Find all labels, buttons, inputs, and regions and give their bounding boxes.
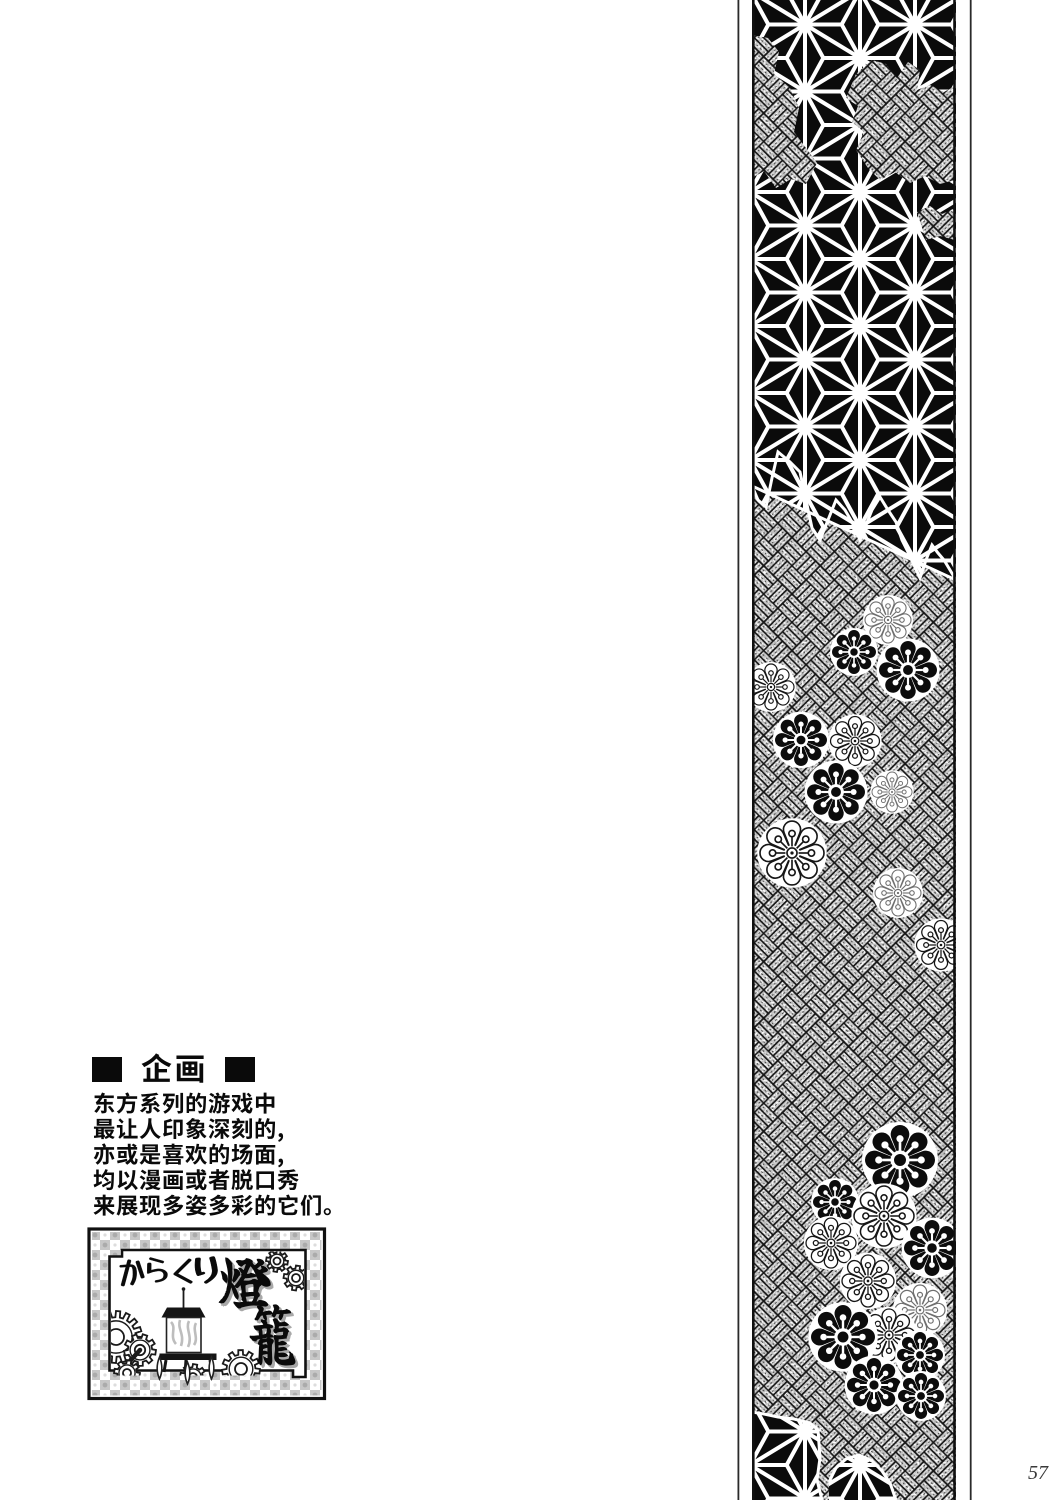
svg-text:57: 57 <box>1028 1462 1049 1484</box>
